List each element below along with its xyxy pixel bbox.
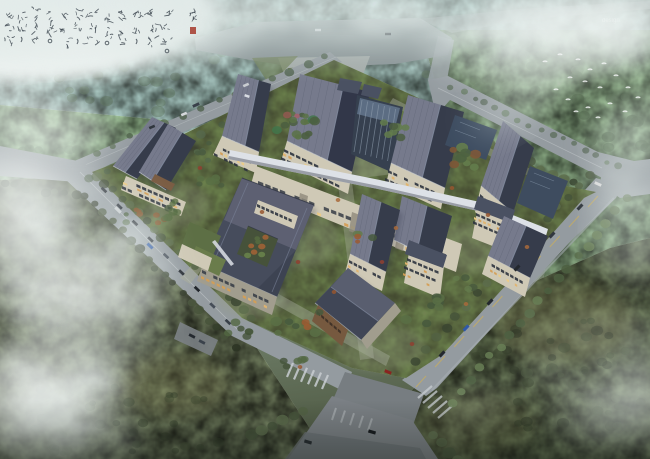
svg-text:design: design <box>602 18 620 24</box>
